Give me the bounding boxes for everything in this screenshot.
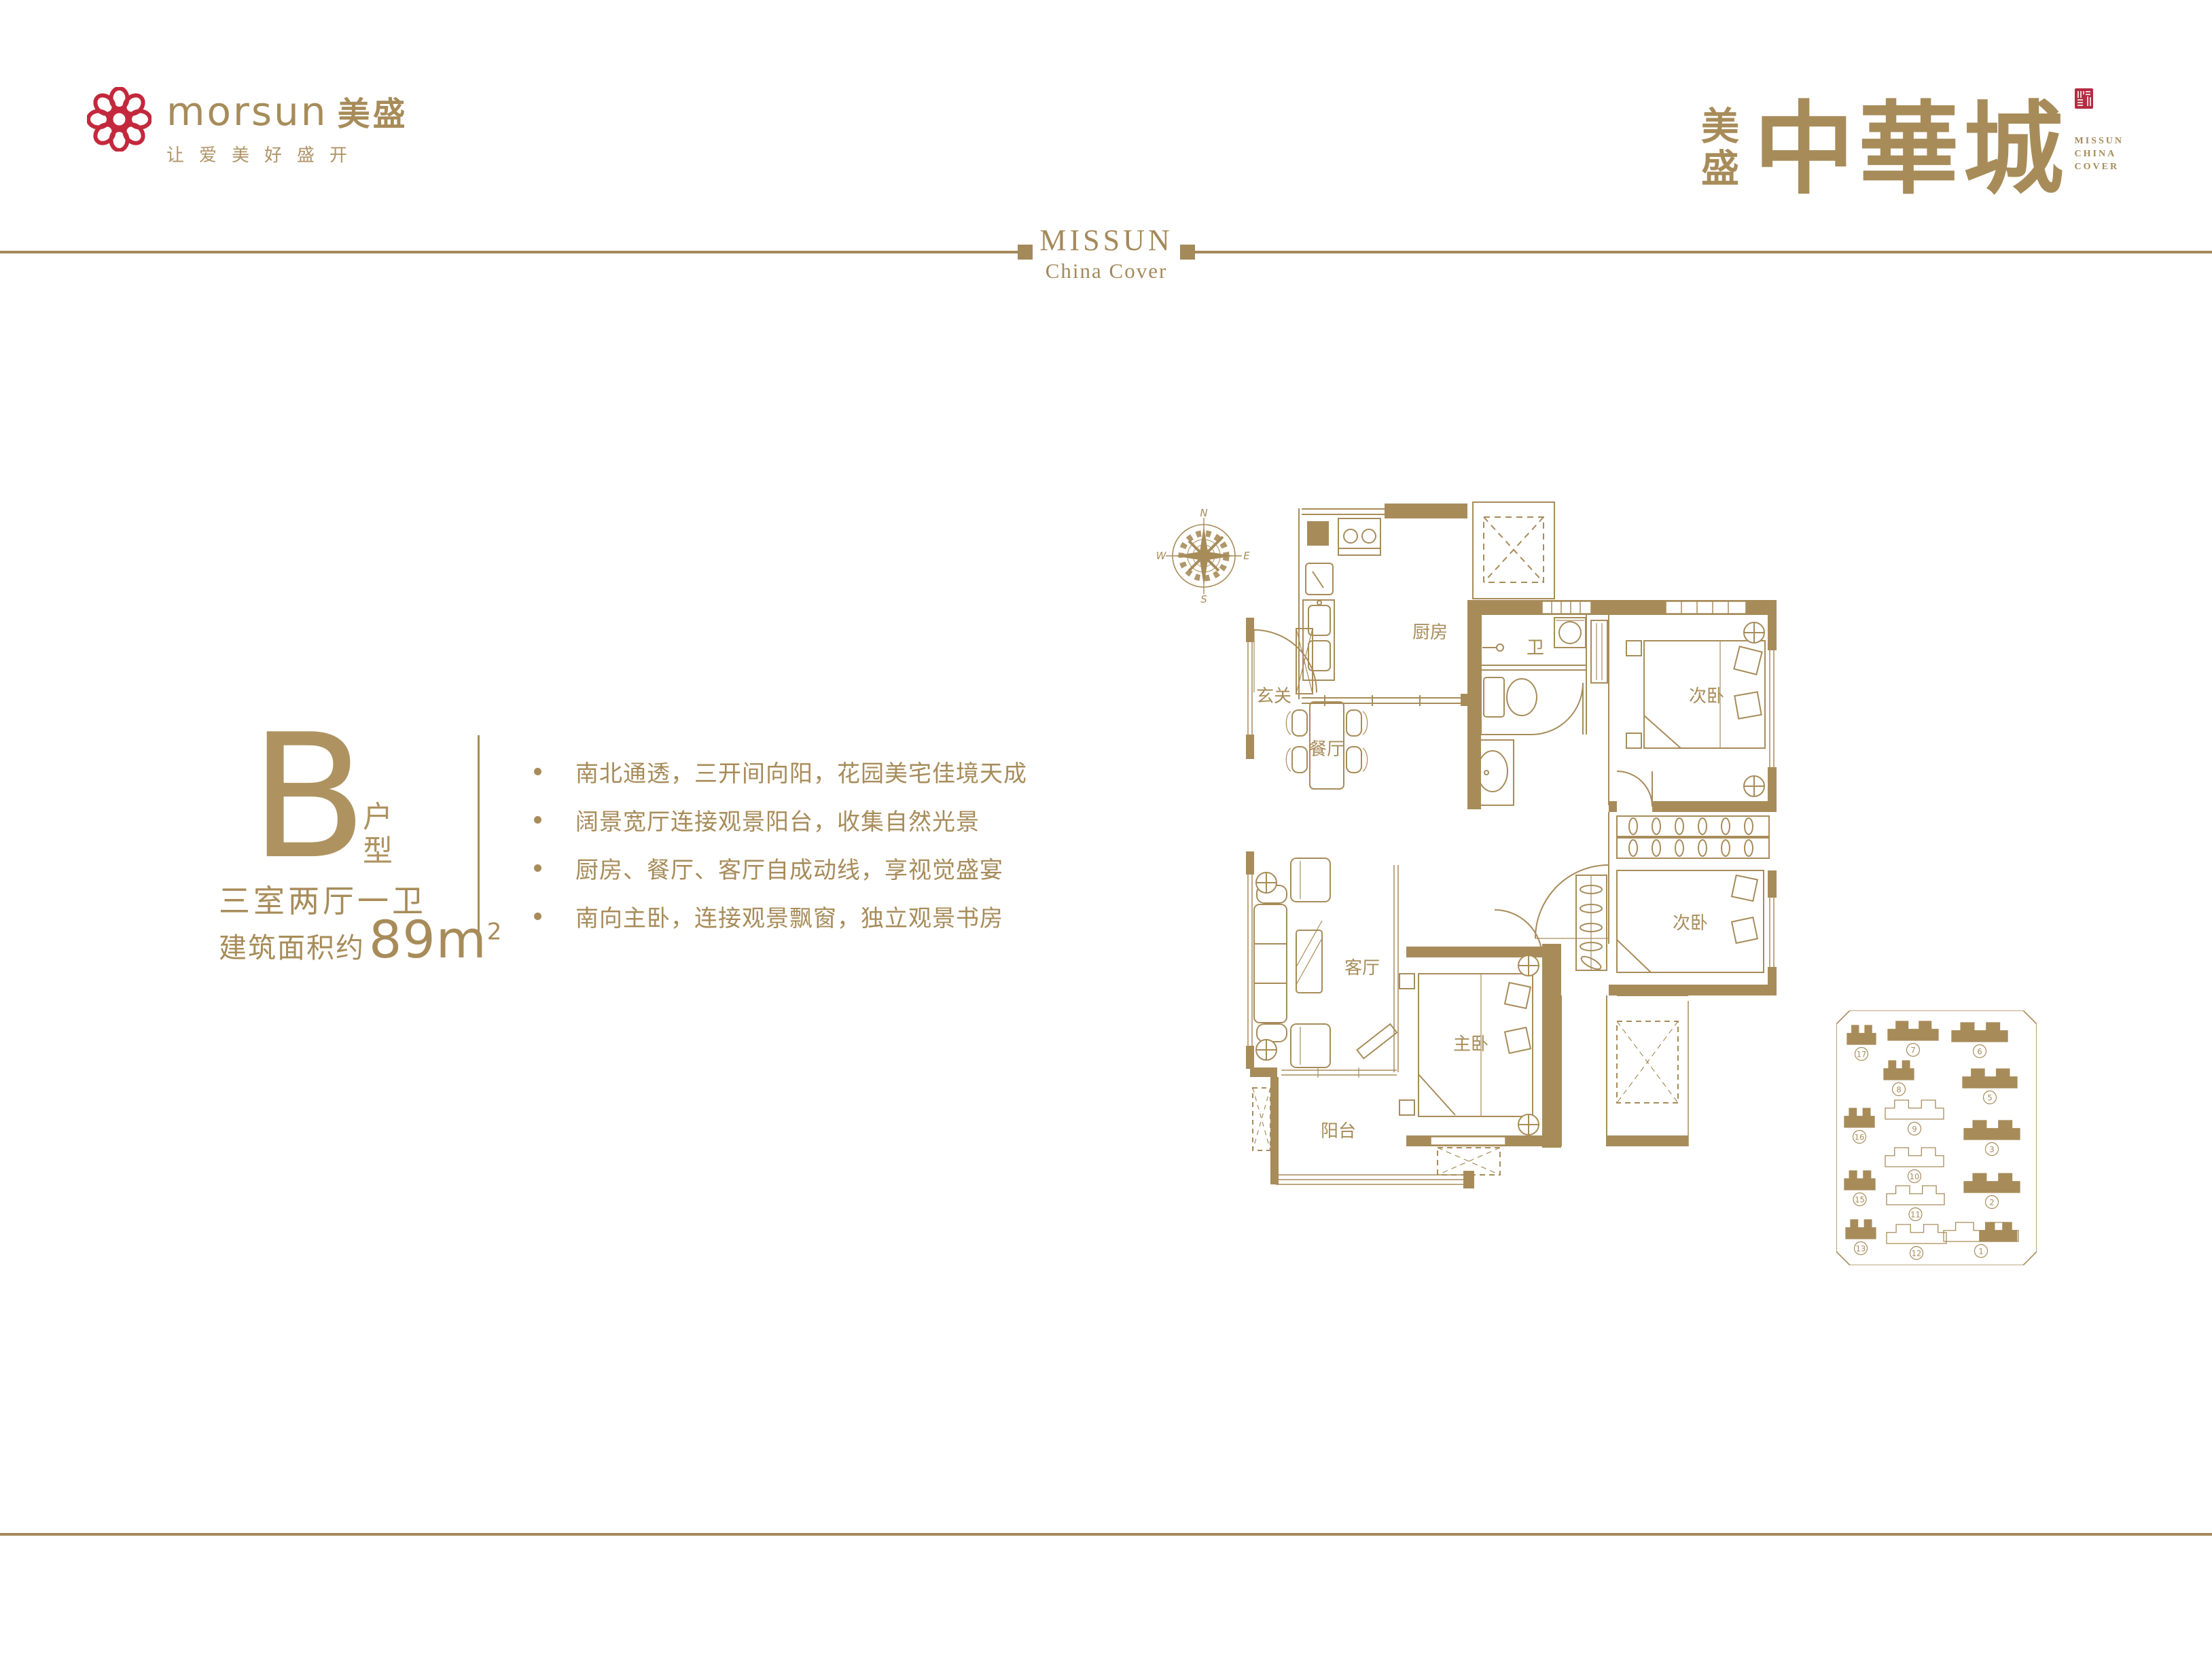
feature-list: 南北通透，三开间向阳，花园美宅佳境天成 阔景宽厅连接观景阳台，收集自然光景 厨房…	[534, 747, 1027, 940]
north-wall	[1467, 600, 1777, 615]
keyplan-building-9: 9	[1885, 1100, 1944, 1135]
room-label-living: 客厅	[1344, 958, 1380, 978]
svg-text:12: 12	[1912, 1249, 1922, 1258]
unit-type-label: 户 型	[363, 800, 395, 868]
keyplan-building-6: 6	[1952, 1023, 2008, 1058]
balcony	[1250, 1068, 1474, 1188]
svg-text:13: 13	[1856, 1244, 1866, 1254]
keyplan-building-8: 8	[1884, 1061, 1914, 1096]
divider-line-left	[0, 251, 1018, 253]
kitchen-room	[1299, 504, 1470, 706]
room-label-balcony: 阳台	[1321, 1121, 1356, 1142]
keyplan-building-5: 5	[1963, 1069, 2017, 1104]
area-prefix: 建筑面积约	[219, 925, 365, 966]
keyplan-building-3: 3	[1964, 1121, 2020, 1156]
room-label-bedroom-b: 次卧	[1673, 913, 1708, 934]
divider-square-right	[1180, 245, 1195, 260]
washbasin-cabinet	[1467, 735, 1514, 809]
keyplan-building-1: 1	[1944, 1222, 2018, 1258]
keyplan-building-16: 16	[1844, 1108, 1874, 1144]
bullet-icon	[534, 768, 541, 775]
room-labels: 玄关 厨房 卫 餐厅 次卧 次卧 客厅 主卧 阳台	[1256, 622, 1724, 1142]
project-name: 中華城	[1754, 101, 2068, 201]
room-label-dining: 餐厅	[1309, 739, 1344, 760]
brand-name-en: morsun	[166, 88, 328, 135]
feature-item: 阔景宽厅连接观景阳台，收集自然光景	[534, 796, 1027, 844]
svg-text:2: 2	[1989, 1198, 1994, 1207]
svg-text:5: 5	[1987, 1093, 1992, 1103]
svg-text:8: 8	[1896, 1085, 1901, 1095]
feature-item: 厨房、餐厅、客厅自成动线，享视觉盛宴	[534, 844, 1027, 892]
brand-logo: morsun 美盛 让爱美好盛开	[87, 87, 408, 166]
unit-type-char1: 户	[363, 800, 395, 834]
svg-text:17: 17	[1857, 1050, 1867, 1059]
room-label-entry: 玄关	[1256, 686, 1291, 707]
keyplan-building-11: 11	[1887, 1186, 1944, 1221]
keyplan-building-15: 15	[1844, 1171, 1875, 1206]
room-label-bedroom-a: 次卧	[1689, 686, 1724, 707]
project-subtitle-line1: MISSUN	[2075, 135, 2124, 147]
feature-text-2: 阔景宽厅连接观景阳台，收集自然光景	[575, 803, 980, 836]
bullet-icon	[534, 864, 541, 872]
bathroom	[1467, 600, 1586, 736]
feature-text-1: 南北通透，三开间向阳，花园美宅佳境天成	[575, 755, 1027, 788]
compass-n: N	[1200, 508, 1207, 519]
area-value: 89m2	[369, 909, 502, 970]
bullet-icon	[534, 816, 541, 824]
room-label-master: 主卧	[1453, 1034, 1488, 1055]
service-shaft	[1473, 502, 1554, 599]
area-number: 89m	[369, 909, 487, 970]
svg-text:9: 9	[1912, 1125, 1916, 1134]
divider-square-left	[1018, 245, 1033, 260]
study-closet-strip	[1561, 995, 1688, 1146]
unit-type-char2: 型	[363, 834, 395, 868]
divider-title: MISSUN China Cover	[1033, 223, 1180, 283]
project-subtitle-line3: COVER	[2075, 160, 2124, 173]
room-label-bath: 卫	[1527, 638, 1544, 658]
divider-title-en: MISSUN	[1033, 223, 1180, 258]
closet-hangers	[1617, 816, 1769, 858]
seal-icon	[2075, 88, 2093, 109]
compass-s: S	[1200, 593, 1207, 603]
footer-line	[0, 1533, 2212, 1536]
project-logo: 美盛 中華城 MISSUN CHINA COVER	[1690, 82, 2124, 201]
bullet-icon	[534, 913, 541, 920]
divider-line-right	[1195, 251, 2212, 253]
room-label-kitchen: 厨房	[1412, 622, 1448, 643]
keyplan-buildings: 1776851693101521113121	[1844, 1021, 2020, 1260]
keyplan-building-17: 17	[1847, 1025, 1876, 1061]
project-subtitle-line2: CHINA	[2075, 147, 2124, 160]
keyplan-building-12: 12	[1887, 1224, 1946, 1260]
brand-name-cn: 美盛	[338, 87, 408, 135]
unit-area: 建筑面积约 89m2	[219, 909, 502, 970]
svg-text:15: 15	[1855, 1195, 1865, 1205]
svg-text:6: 6	[1977, 1047, 1982, 1057]
feature-text-3: 厨房、餐厅、客厅自成动线，享视觉盛宴	[575, 851, 1003, 885]
svg-text:3: 3	[1989, 1145, 1994, 1154]
brand-tagline: 让爱美好盛开	[166, 141, 408, 166]
flower-icon	[87, 87, 151, 152]
floorplan: 玄关 厨房 卫 餐厅 次卧 次卧 客厅 主卧 阳台	[1236, 498, 1780, 1232]
project-subtitle: MISSUN CHINA COVER	[2075, 135, 2124, 173]
svg-text:16: 16	[1855, 1133, 1865, 1142]
unit-divider-line	[478, 735, 480, 945]
divider-subtitle-en: China Cover	[1033, 259, 1180, 283]
keyplan-building-7: 7	[1888, 1021, 1938, 1057]
keyplan-building-10: 10	[1885, 1148, 1944, 1183]
svg-text:7: 7	[1910, 1046, 1915, 1055]
unit-letter: B	[250, 712, 368, 883]
svg-text:10: 10	[1910, 1172, 1920, 1182]
feature-text-4: 南向主卧，连接观景飘窗，独立观景书房	[575, 900, 1003, 933]
project-prefix: 美盛	[1690, 106, 1745, 190]
compass-w: W	[1156, 550, 1167, 562]
svg-text:1: 1	[1978, 1247, 1983, 1256]
svg-text:11: 11	[1910, 1210, 1921, 1220]
feature-item: 南向主卧，连接观景飘窗，独立观景书房	[534, 892, 1027, 940]
feature-item: 南北通透，三开间向阳，花园美宅佳境天成	[534, 747, 1027, 796]
keyplan: 1776851693101521113121	[1836, 1010, 2037, 1265]
brochure-page: morsun 美盛 让爱美好盛开 美盛 中華城 MISSUN C	[0, 0, 2212, 1658]
keyplan-building-2: 2	[1964, 1174, 2020, 1209]
keyplan-building-13: 13	[1846, 1220, 1876, 1255]
area-exponent: 2	[487, 919, 503, 946]
